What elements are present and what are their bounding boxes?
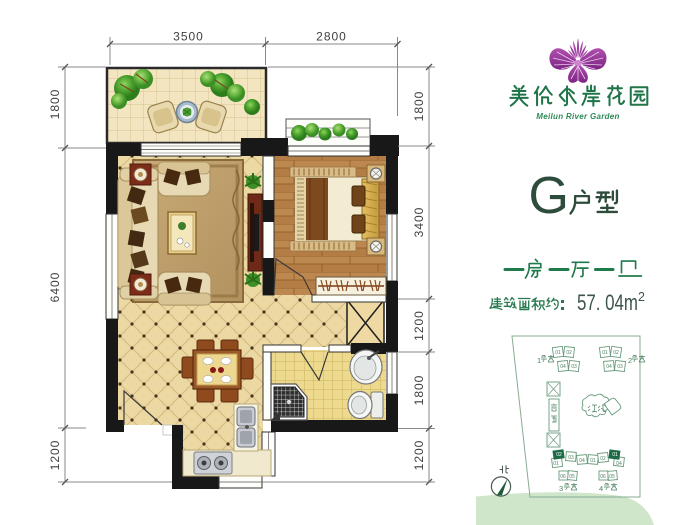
svg-text:05: 05	[569, 474, 575, 480]
svg-text:1800: 1800	[412, 375, 426, 406]
svg-text:05: 05	[609, 474, 615, 480]
svg-text:2: 2	[638, 290, 645, 304]
svg-text:01: 01	[612, 452, 618, 458]
svg-text:03: 03	[571, 364, 577, 370]
svg-text:01: 01	[602, 350, 608, 356]
svg-text:1200: 1200	[412, 310, 426, 341]
svg-text:02: 02	[566, 350, 572, 356]
svg-text:3500: 3500	[173, 30, 204, 44]
svg-text:6400: 6400	[48, 272, 62, 303]
svg-text:04: 04	[616, 461, 622, 467]
svg-text:2800: 2800	[316, 30, 347, 44]
svg-text:1200: 1200	[48, 440, 62, 471]
svg-text:1: 1	[537, 356, 541, 365]
svg-text:02: 02	[613, 350, 619, 356]
svg-text:02: 02	[556, 452, 562, 458]
svg-text:1800: 1800	[412, 91, 426, 122]
svg-text:03: 03	[617, 364, 623, 370]
svg-text:57. 04m: 57. 04m	[577, 290, 638, 315]
svg-text:04: 04	[579, 458, 585, 464]
svg-text:01: 01	[555, 350, 561, 356]
svg-text:1200: 1200	[412, 440, 426, 471]
svg-text:06: 06	[560, 474, 566, 480]
svg-text:3: 3	[559, 484, 563, 493]
svg-text:02: 02	[600, 456, 606, 462]
svg-text:04: 04	[560, 364, 566, 370]
svg-text:01: 01	[590, 458, 596, 464]
svg-text:04: 04	[606, 364, 612, 370]
svg-text:06: 06	[600, 474, 606, 480]
svg-text:01: 01	[553, 461, 559, 467]
svg-text:3400: 3400	[412, 207, 426, 238]
svg-text:03: 03	[568, 455, 574, 461]
svg-text:4: 4	[599, 484, 603, 493]
svg-text:Meilun River Garden: Meilun River Garden	[536, 112, 620, 121]
svg-text:2: 2	[628, 356, 632, 365]
svg-text:1800: 1800	[48, 89, 62, 120]
svg-text:G: G	[529, 167, 569, 225]
